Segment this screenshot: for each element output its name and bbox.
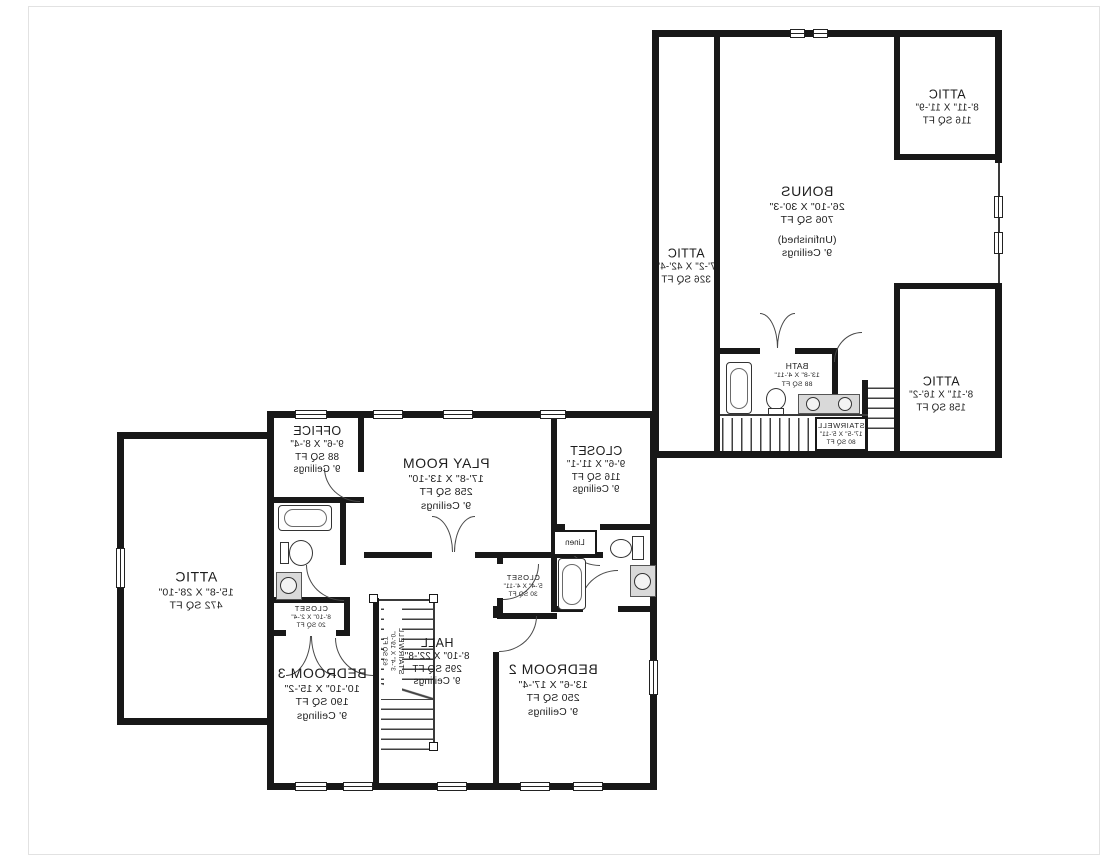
window [443, 410, 473, 419]
room-area: 250 SQ FT [508, 692, 597, 705]
floor-plan: BONUS 26'-10" X 30'-3" 706 SQ FT (Unfini… [0, 0, 1104, 860]
stair-rail [379, 599, 435, 601]
wall [551, 418, 557, 612]
room-dims: 8'-10" X 2'-4" [291, 614, 331, 622]
wall [652, 451, 1002, 458]
wall [117, 718, 274, 725]
room-name: BONUS [769, 183, 844, 201]
room-label-attic-left-strip: ATTIC 7'-2" X 42'-4" 326 SQ FT [656, 245, 715, 286]
room-label-attic-bottom-right: ATTIC 8'-11" X 16'-2" 158 SQ FT [909, 373, 973, 414]
room-ceilings: 9' Ceilings [402, 500, 489, 513]
room-name: BEDROOM 3 [277, 665, 366, 683]
room-dims: 17'-8" X 13'-10" [402, 473, 489, 486]
room-ceilings: 9' Ceilings [567, 484, 626, 497]
room-dims: 9'-6" X 8'-4" [290, 439, 344, 452]
room-dims: 8'-11" X 16'-2" [909, 389, 973, 402]
window [540, 410, 566, 419]
room-dims: 8'-10" X 22'-8" [405, 651, 470, 664]
wall [358, 418, 364, 472]
window [994, 196, 1003, 218]
sink [806, 397, 820, 411]
room-area: 258 SQ FT [402, 486, 489, 499]
wall [618, 606, 657, 612]
room-dims: 7'-2" X 42'-4" [656, 261, 715, 274]
room-area: 30 SQ FT [503, 591, 542, 599]
room-label-linen: Linen [565, 538, 585, 548]
room-area: 158 SQ FT [909, 402, 973, 415]
room-area: 20 SQ FT [291, 622, 331, 630]
sink [634, 573, 651, 590]
room-area: 706 SQ FT [769, 215, 844, 228]
room-name: PLAY ROOM [402, 455, 489, 473]
room-dims: 15'-8" X 28'-10" [158, 587, 233, 600]
toilet [289, 540, 313, 566]
room-name: BATH [774, 361, 819, 372]
room-area: 88 SQ FT [774, 380, 819, 389]
room-area: 116 SQ FT [567, 472, 626, 485]
room-note: (Unfinished) [769, 234, 844, 247]
room-label-closet-hall: CLOSET 8'-10" X 2'-4" 20 SQ FT [291, 604, 331, 630]
wall [117, 432, 124, 548]
window [343, 782, 373, 791]
wall [995, 283, 1002, 458]
room-label-stairwell-lower: STAIRWELL 3'-4" X 19'-0" 63 SQ FT [380, 627, 406, 674]
room-name: OFFICE [290, 423, 344, 439]
wall [274, 630, 286, 636]
newel-post [369, 594, 378, 603]
room-name: STAIRWELL [817, 421, 864, 431]
wall [650, 411, 657, 790]
stairs [722, 418, 814, 451]
room-name: ATTIC [656, 245, 715, 261]
wall [894, 154, 1002, 160]
bathtub-inner [562, 564, 582, 605]
sink [838, 397, 852, 411]
room-dims: 10'-10" X 15'-2" [277, 683, 366, 696]
wall [998, 163, 1000, 283]
room-area: 63 SQ FT [380, 627, 388, 674]
room-ceilings: 9' Ceilings [277, 710, 366, 723]
window [573, 782, 603, 791]
room-area: 116 SQ FT [915, 115, 978, 128]
wall [117, 432, 274, 439]
room-label-play-room: PLAY ROOM 17'-8" X 13'-10" 258 SQ FT 9' … [402, 455, 489, 513]
room-name: STAIRWELL [396, 627, 406, 674]
room-dims: 13'-6" X 17'-4" [508, 679, 597, 692]
room-label-closet-bedroom2: CLOSET 5'-4" X 4'-11" 30 SQ FT [503, 573, 542, 599]
room-label-bedroom2: BEDROOM 2 13'-6" X 17'-4" 250 SQ FT 9' C… [508, 661, 597, 719]
room-label-office: OFFICE 9'-6" X 8'-4" 88 SQ FT 9' Ceiling… [290, 423, 344, 477]
room-dims: 3'-4" X 19'-0" [388, 627, 396, 674]
wall [652, 30, 659, 458]
room-ceilings: 9' Ceilings [508, 706, 597, 719]
wall [336, 630, 350, 636]
room-dims: 5'-4" X 4'-11" [503, 583, 542, 591]
room-name: ATTIC [915, 86, 978, 102]
window [649, 660, 658, 695]
room-name: BEDROOM 2 [508, 661, 597, 679]
room-name: HALL [405, 635, 470, 651]
wall [364, 552, 432, 558]
room-name: Linen [565, 538, 585, 548]
room-area: 88 SQ FT [290, 452, 344, 465]
room-label-bath-upper: BATH 13'-8" X 4'-11" 88 SQ FT [774, 361, 819, 389]
bathtub-inner [730, 368, 748, 409]
room-name: ATTIC [909, 373, 973, 389]
room-area: 190 SQ FT [277, 696, 366, 709]
wall [497, 552, 503, 564]
toilet [610, 539, 632, 558]
toilet-tank [768, 408, 784, 415]
toilet [766, 388, 786, 410]
wall [600, 524, 657, 530]
room-dims: 8'-11" X 11'-9" [915, 102, 978, 115]
wall [267, 411, 274, 790]
room-area: 472 SQ FT [158, 600, 233, 613]
window [295, 782, 327, 791]
wall [475, 552, 551, 558]
window [295, 410, 327, 419]
wall [720, 348, 760, 354]
room-dims: 26'-10" X 30'-3" [769, 201, 844, 214]
room-area: 295 SQ FT [405, 664, 470, 677]
room-label-stairwell-upper: STAIRWELL 17'-5" X 5'-11" 80 SQ FT [817, 421, 864, 447]
room-name: CLOSET [291, 604, 331, 614]
wall [714, 37, 720, 451]
window [994, 232, 1003, 254]
room-name: CLOSET [567, 443, 626, 459]
room-label-bonus: BONUS 26'-10" X 30'-3" 706 SQ FT (Unfini… [769, 183, 844, 261]
window [520, 782, 550, 791]
wall [894, 283, 1002, 289]
wall [340, 503, 346, 565]
newel-post [429, 594, 438, 603]
room-name: CLOSET [503, 573, 542, 583]
newel-post [429, 742, 438, 751]
window [373, 410, 403, 419]
room-area: 80 SQ FT [817, 439, 864, 447]
room-label-hall: HALL 8'-10" X 22'-8" 295 SQ FT 9' Ceilin… [405, 635, 470, 689]
room-label-bedroom3: BEDROOM 3 10'-10" X 15'-2" 190 SQ FT 9' … [277, 665, 366, 723]
room-dims: 13'-8" X 4'-11" [774, 372, 819, 381]
room-ceilings: 9' Ceilings [769, 247, 844, 260]
room-label-attic-large: ATTIC 15'-8" X 28'-10" 472 SQ FT [158, 569, 233, 614]
window [437, 782, 467, 791]
room-dims: 9'-6" X 11'-1" [567, 459, 626, 472]
window [813, 29, 828, 38]
wall [894, 289, 900, 451]
room-name: ATTIC [158, 569, 233, 587]
toilet-tank [280, 542, 289, 564]
wall [493, 652, 499, 790]
room-label-attic-top-right: ATTIC 8'-11" X 11'-9" 116 SQ FT [915, 86, 978, 127]
wall [894, 37, 900, 154]
room-ceilings: 9' Ceilings [290, 464, 344, 477]
wall [117, 588, 124, 725]
wall [720, 414, 868, 416]
window [790, 29, 805, 38]
page-border [28, 6, 1100, 855]
room-area: 326 SQ FT [656, 274, 715, 287]
room-label-closet-walkin: CLOSET 9'-6" X 11'-1" 116 SQ FT 9' Ceili… [567, 443, 626, 497]
wall [373, 598, 379, 790]
toilet-tank [632, 536, 644, 560]
bathtub-inner [284, 509, 327, 527]
room-dims: 17'-5" X 5'-11" [817, 431, 864, 439]
room-ceilings: 9' Ceilings [405, 676, 470, 689]
attic-steps [868, 387, 894, 429]
wall [995, 30, 1002, 163]
sink [280, 577, 297, 594]
window [116, 548, 125, 588]
